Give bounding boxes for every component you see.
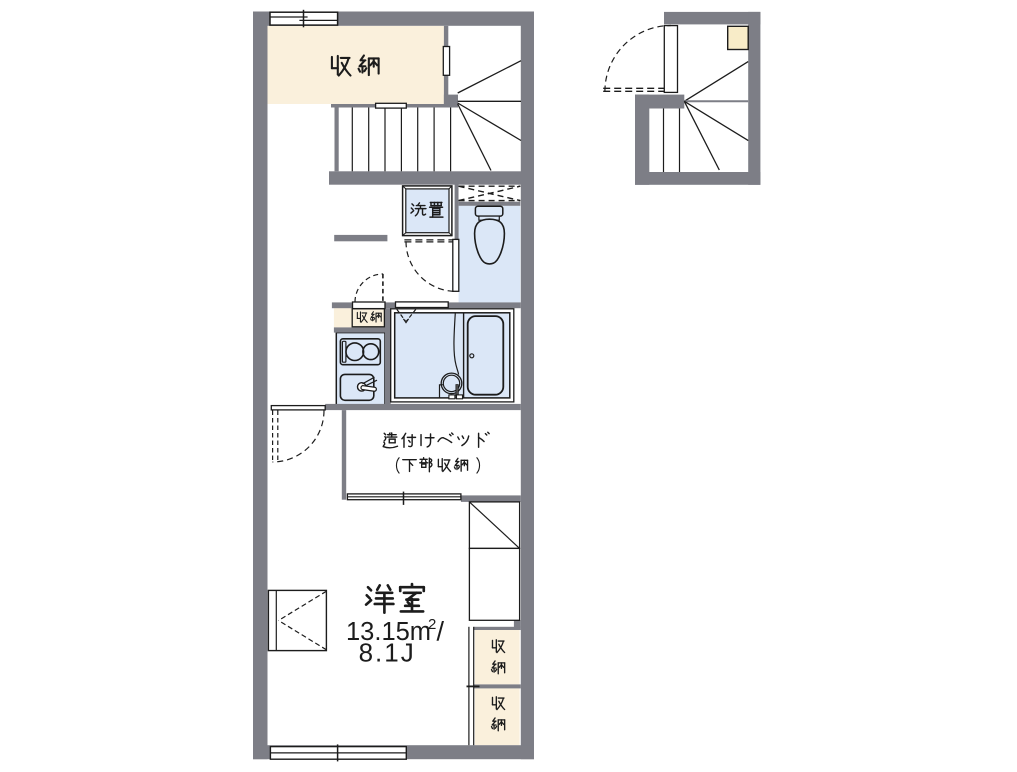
svg-text:/: / xyxy=(437,617,445,647)
svg-text:8.1J: 8.1J xyxy=(359,638,416,668)
svg-text:2: 2 xyxy=(428,616,436,633)
